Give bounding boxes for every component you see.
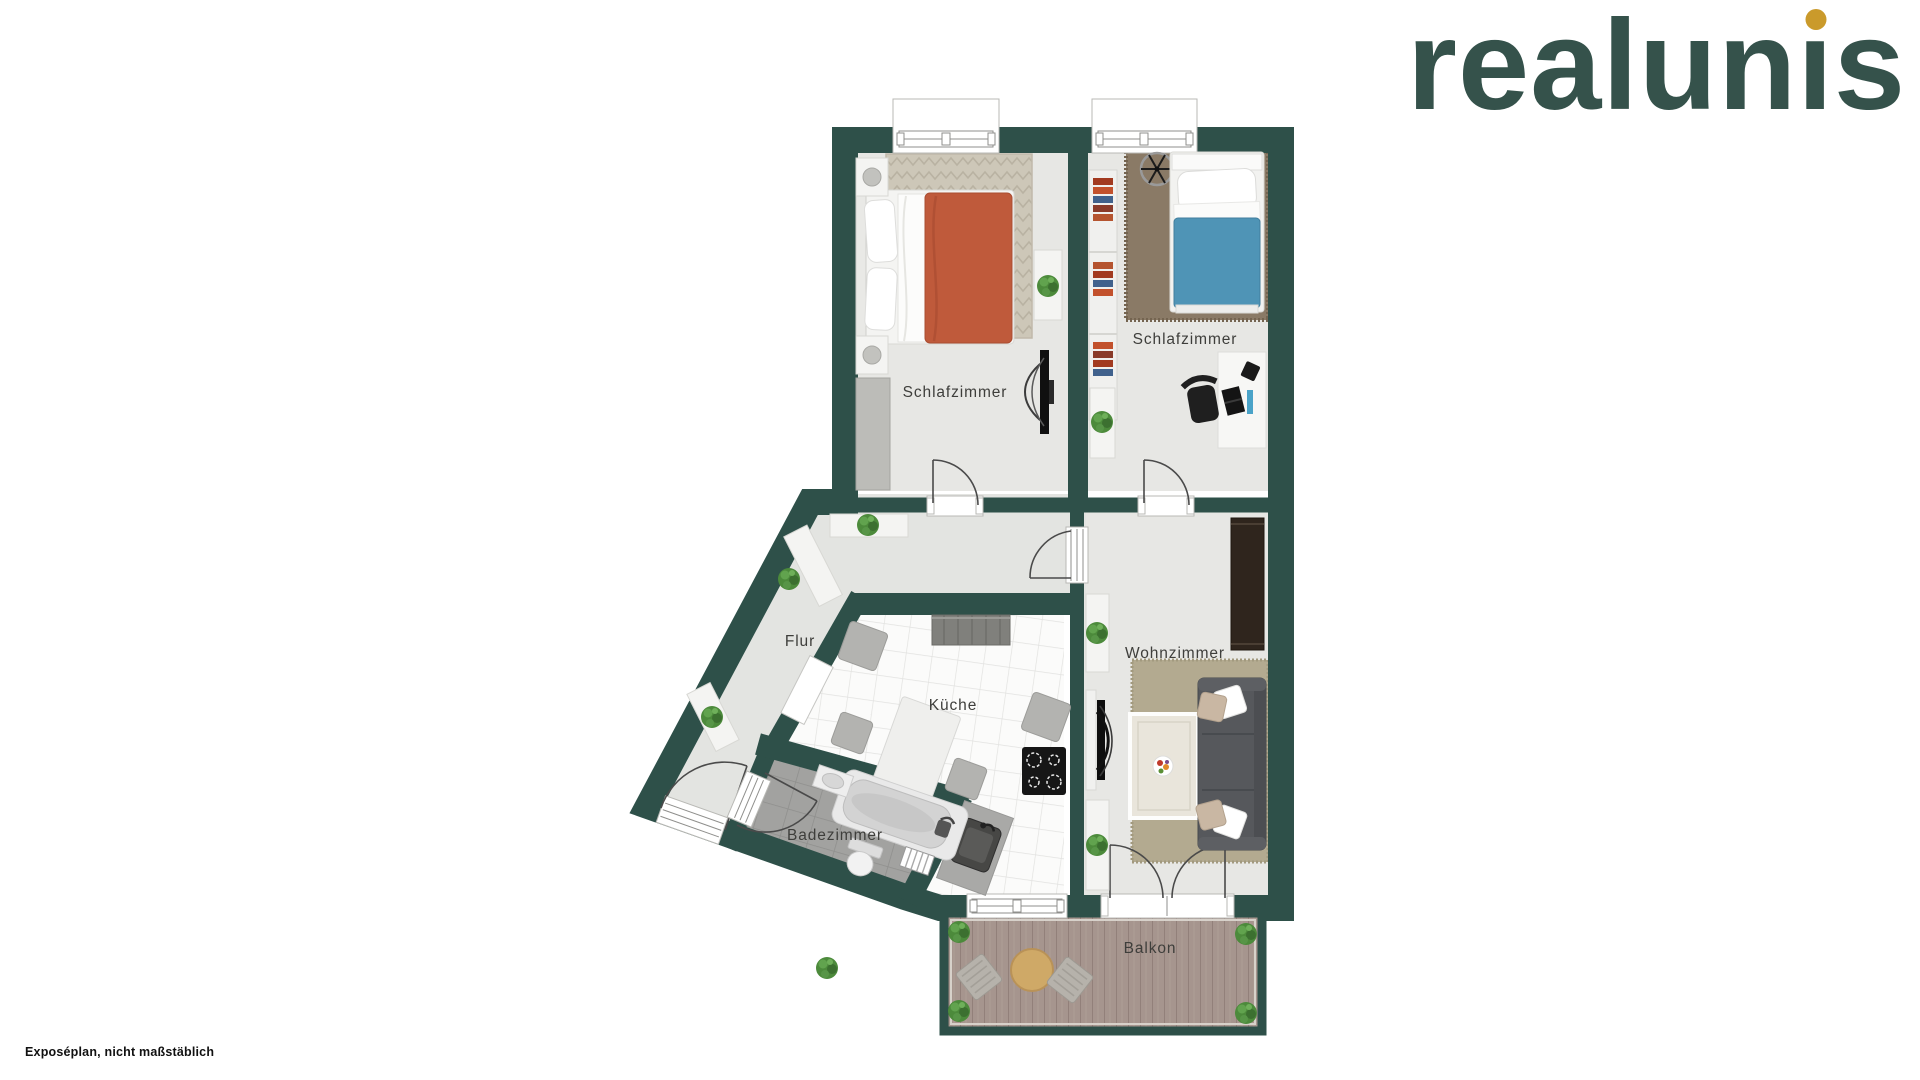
balcony-table bbox=[1011, 949, 1053, 991]
room-label-wohnzimmer: Wohnzimmer bbox=[1125, 645, 1225, 662]
desk-accessory bbox=[1247, 390, 1253, 414]
sofa bbox=[1195, 678, 1266, 850]
kitchen-balcony-window bbox=[967, 894, 1067, 918]
floorplan: Schlafzimmer Schlafzimmer Flur Küche Bad… bbox=[0, 0, 1920, 1080]
bedroom2-window bbox=[1092, 99, 1197, 153]
plan-disclaimer: Exposéplan, nicht maßstäblich bbox=[25, 1045, 214, 1059]
page: realunıs bbox=[0, 0, 1920, 1080]
plant-icon bbox=[1235, 923, 1257, 945]
plant-icon bbox=[948, 1000, 970, 1022]
room-label-flur: Flur bbox=[785, 633, 815, 650]
pillow bbox=[864, 267, 897, 330]
bed-blanket bbox=[925, 193, 1012, 343]
plant-icon bbox=[857, 514, 879, 536]
lamp-icon bbox=[863, 346, 881, 364]
plant-icon bbox=[1086, 622, 1108, 644]
plant-icon bbox=[778, 568, 800, 590]
coffee-table bbox=[1130, 714, 1198, 818]
bed-blanket bbox=[1174, 218, 1260, 308]
lamp-icon bbox=[863, 168, 881, 186]
pillow bbox=[1197, 692, 1228, 723]
plant-icon bbox=[1091, 411, 1113, 433]
room-label-kueche: Küche bbox=[929, 697, 977, 714]
bedroom1-window bbox=[893, 99, 999, 153]
plant-icon bbox=[1086, 834, 1108, 856]
plant-icon bbox=[1037, 275, 1059, 297]
room-label-schlafzimmer-2: Schlafzimmer bbox=[1133, 331, 1238, 348]
cooktop bbox=[1022, 747, 1066, 795]
plant-icon bbox=[701, 706, 723, 728]
balcony bbox=[944, 913, 1262, 1031]
bookshelf bbox=[1089, 170, 1117, 420]
pillow bbox=[864, 199, 898, 263]
plant-icon bbox=[948, 921, 970, 943]
room-label-balkon: Balkon bbox=[1124, 940, 1177, 957]
wardrobe-dark bbox=[1231, 518, 1264, 650]
plant-icon bbox=[1235, 1002, 1257, 1024]
plant-icon bbox=[816, 957, 838, 979]
room-label-badezimmer: Badezimmer bbox=[787, 827, 883, 844]
wardrobe bbox=[856, 378, 890, 490]
room-label-schlafzimmer-1: Schlafzimmer bbox=[903, 384, 1008, 401]
kitchen-counter bbox=[932, 615, 1010, 645]
